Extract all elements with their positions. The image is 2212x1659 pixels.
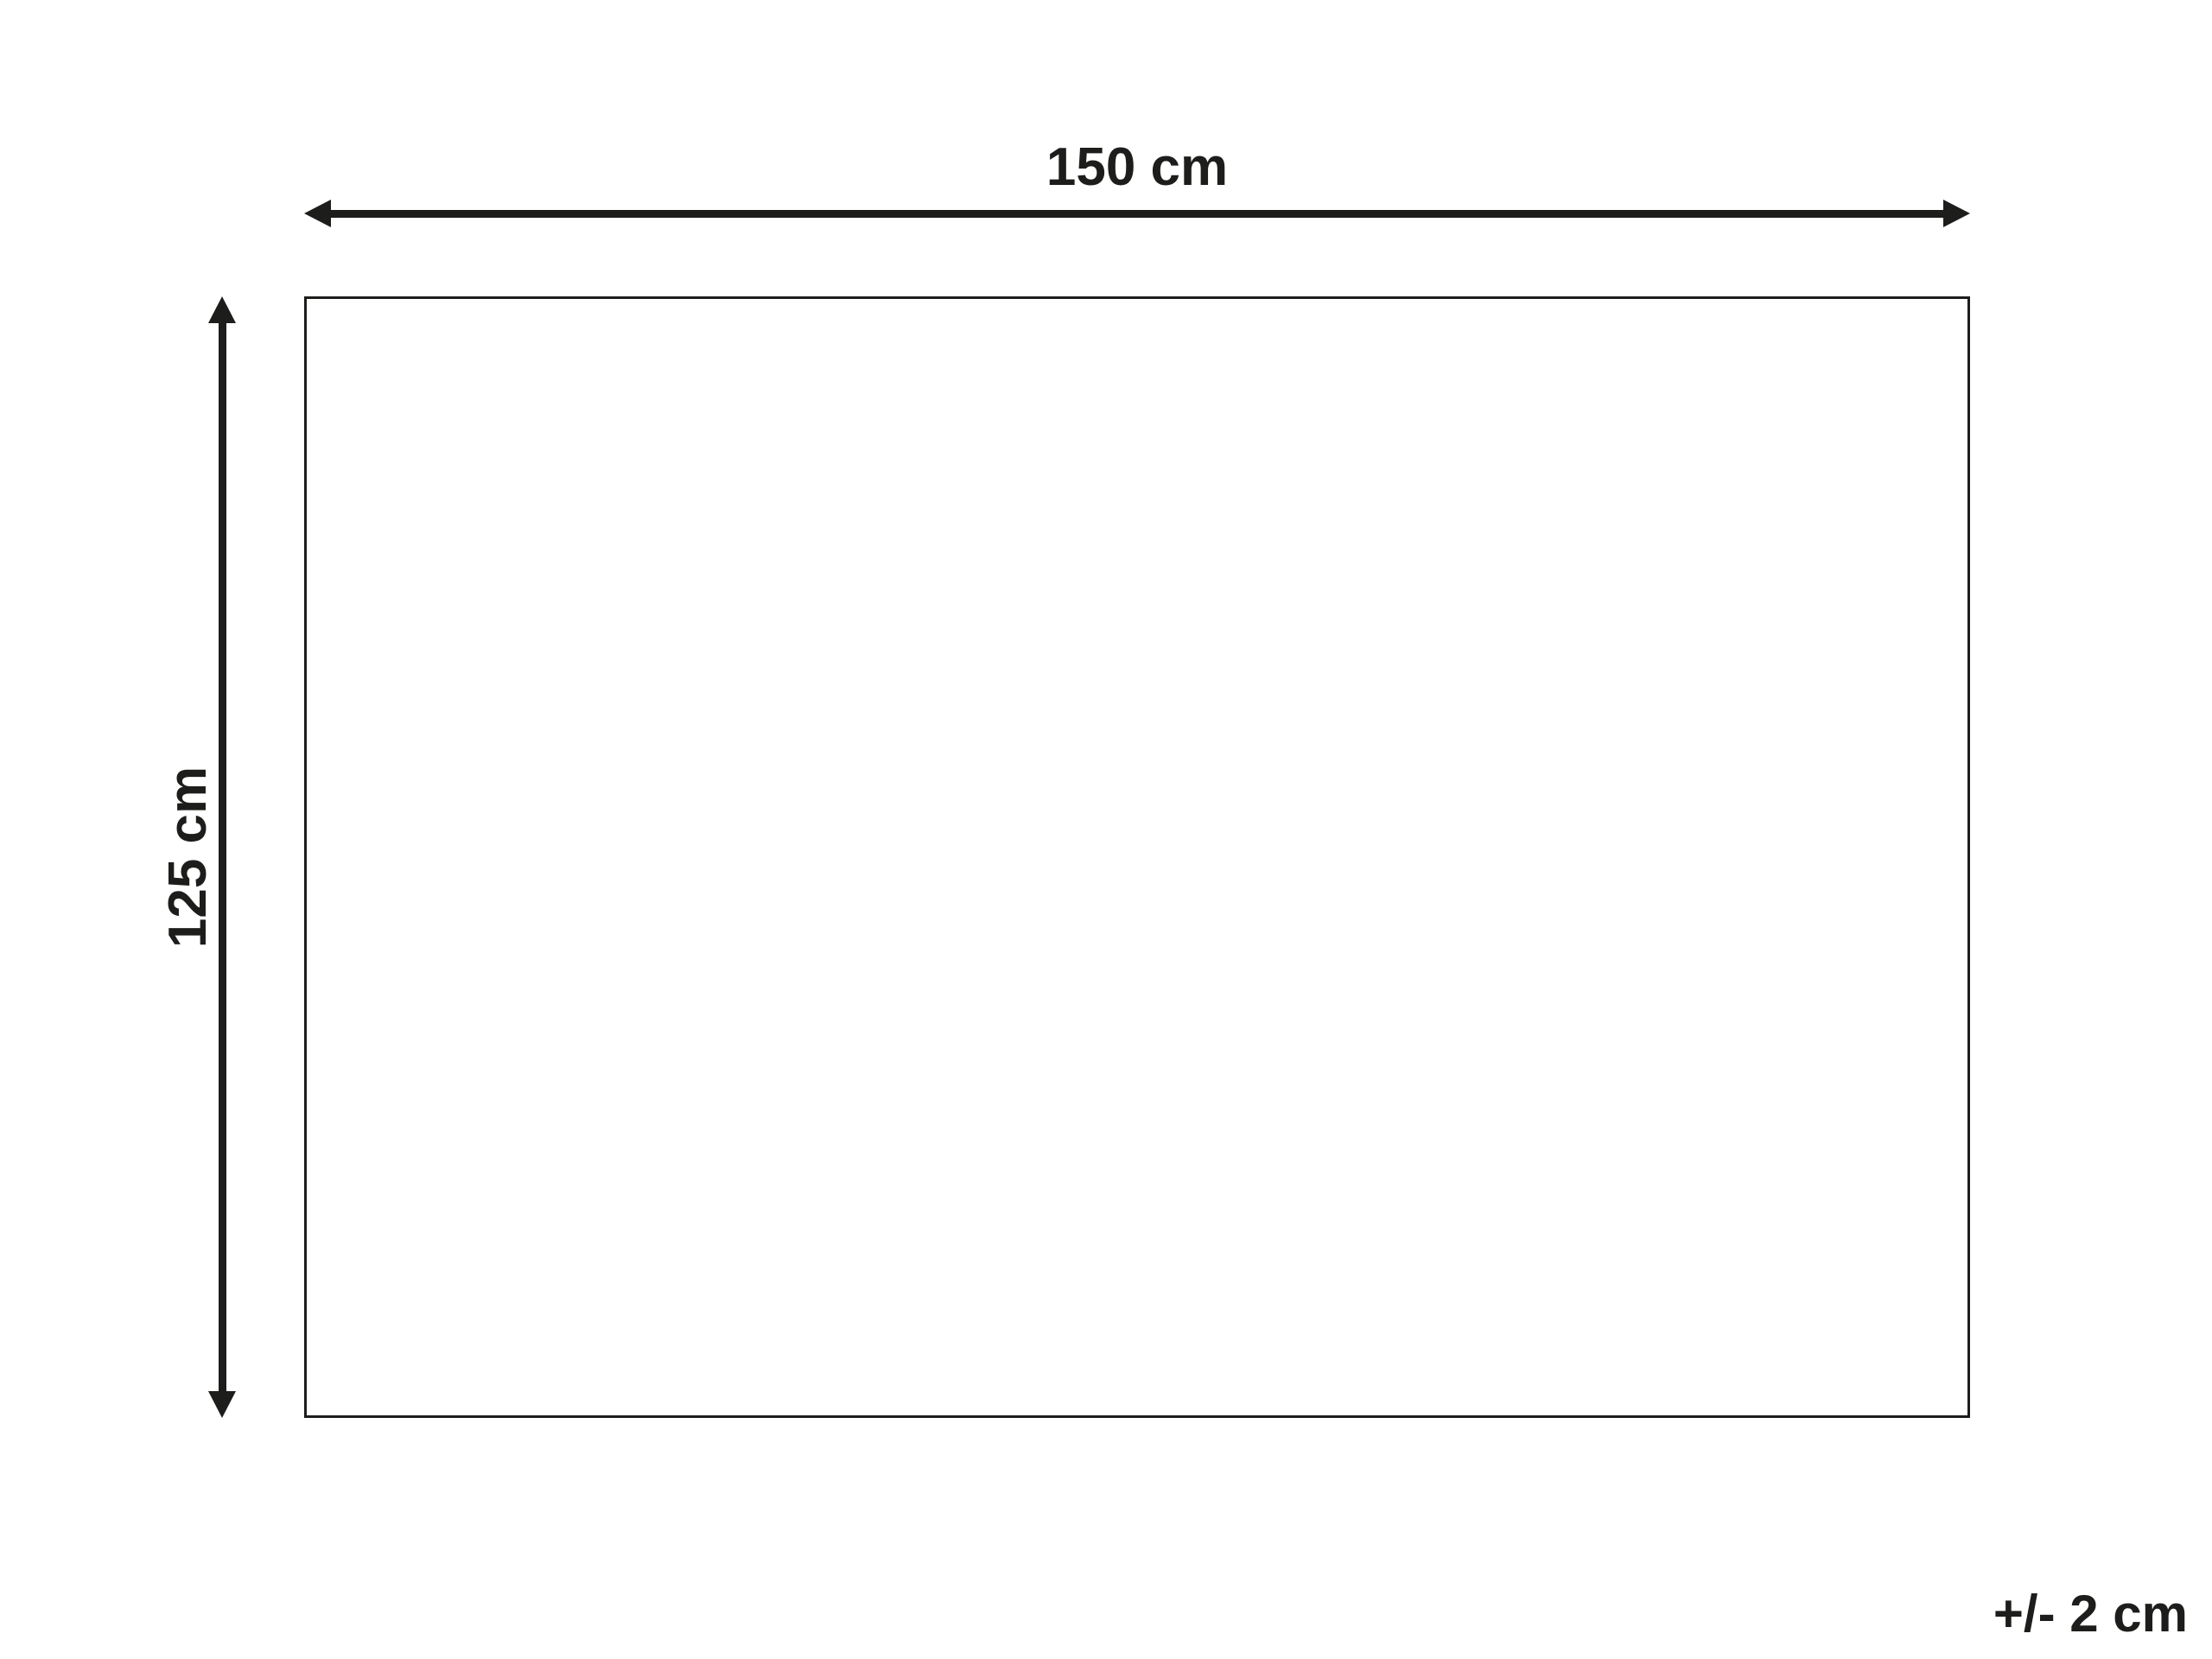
width-dimension-label: 150 cm [304, 141, 1970, 194]
height-dimension-arrow [208, 296, 236, 1418]
arrow-shaft [219, 323, 226, 1391]
arrowhead-right-icon [1943, 200, 1970, 227]
tolerance-label: +/- 2 cm [1993, 1588, 2188, 1640]
arrowhead-up-icon [208, 296, 236, 323]
arrow-shaft [331, 210, 1943, 218]
dimension-diagram: 150 cm 125 cm +/- 2 cm [0, 0, 2212, 1659]
width-dimension-arrow [304, 200, 1970, 227]
product-outline-rectangle [304, 296, 1970, 1418]
arrowhead-left-icon [304, 200, 331, 227]
height-dimension-label: 125 cm [162, 766, 215, 948]
arrowhead-down-icon [208, 1391, 236, 1418]
